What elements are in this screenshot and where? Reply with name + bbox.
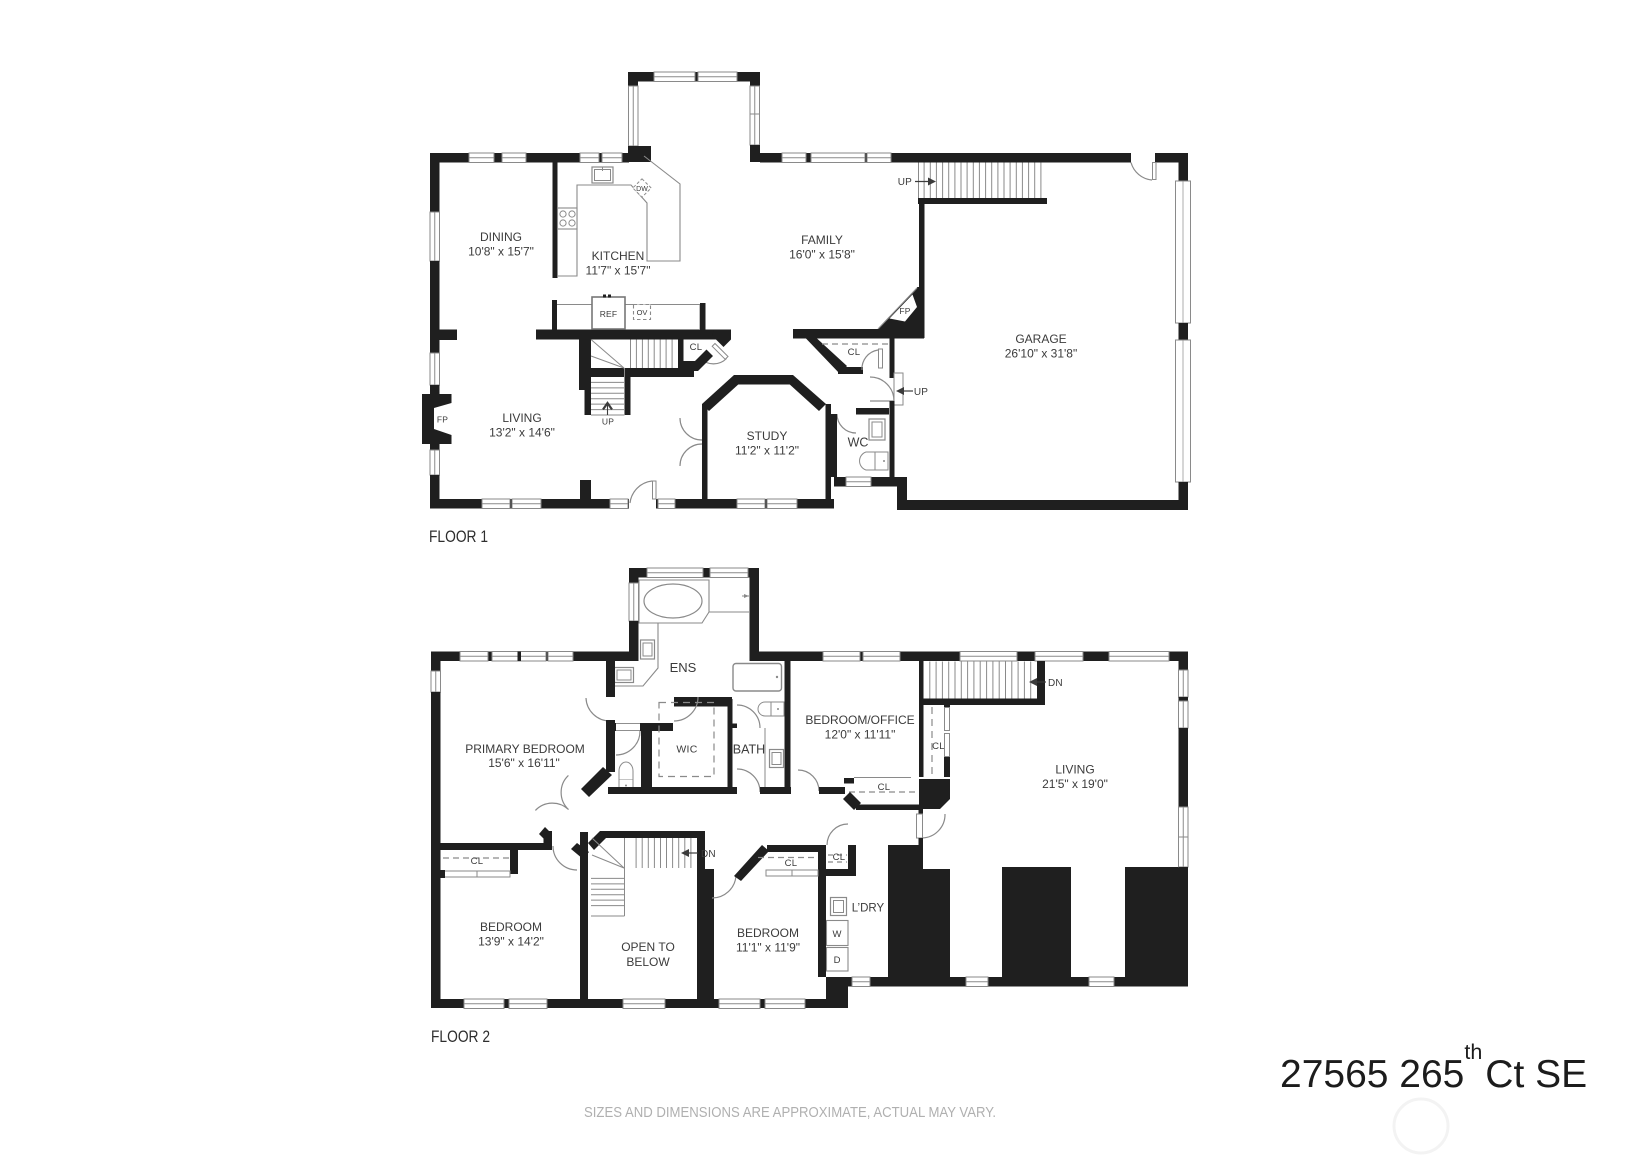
svg-text:DN: DN xyxy=(1048,678,1063,689)
svg-text:CL: CL xyxy=(471,856,484,867)
svg-text:KITCHEN: KITCHEN xyxy=(592,249,645,263)
svg-text:UP: UP xyxy=(602,417,614,427)
svg-text:SIZES AND DIMENSIONS ARE APPRO: SIZES AND DIMENSIONS ARE APPROXIMATE, AC… xyxy=(584,1105,996,1121)
svg-text:OV: OV xyxy=(637,308,648,317)
svg-text:10'8" x 15'7": 10'8" x 15'7" xyxy=(468,245,534,259)
svg-text:CL: CL xyxy=(848,347,861,358)
svg-text:BEDROOM/OFFICE: BEDROOM/OFFICE xyxy=(805,713,914,727)
svg-text:11'1" x 11'9": 11'1" x 11'9" xyxy=(736,941,800,955)
svg-text:D: D xyxy=(834,955,841,966)
svg-text:13'2" x 14'6": 13'2" x 14'6" xyxy=(489,426,555,440)
svg-text:W: W xyxy=(833,929,842,940)
svg-text:26'10" x 31'8": 26'10" x 31'8" xyxy=(1005,347,1078,361)
svg-text:OPEN TO: OPEN TO xyxy=(621,940,675,954)
svg-text:11'2" x 11'2": 11'2" x 11'2" xyxy=(735,444,799,458)
svg-text:DINING: DINING xyxy=(480,230,522,244)
svg-text:13'9" x 14'2": 13'9" x 14'2" xyxy=(478,935,544,949)
svg-text:LIVING: LIVING xyxy=(1055,763,1094,777)
svg-text:CL: CL xyxy=(932,741,945,752)
svg-text:WIC: WIC xyxy=(676,744,697,756)
svg-text:FAMILY: FAMILY xyxy=(801,233,843,247)
svg-text:LIVING: LIVING xyxy=(502,411,541,425)
svg-text:BEDROOM: BEDROOM xyxy=(480,920,542,934)
svg-text:L’DRY: L’DRY xyxy=(852,903,885,915)
svg-text:FLOOR 2: FLOOR 2 xyxy=(431,1028,490,1046)
svg-text:11'7" x 15'7": 11'7" x 15'7" xyxy=(586,264,651,278)
svg-text:16'0" x 15'8": 16'0" x 15'8" xyxy=(789,248,855,262)
svg-text:UP: UP xyxy=(914,387,928,398)
svg-text:BELOW: BELOW xyxy=(626,955,670,969)
svg-text:REF: REF xyxy=(600,309,618,319)
svg-text:CL: CL xyxy=(833,852,846,863)
svg-text:GARAGE: GARAGE xyxy=(1015,332,1066,346)
svg-text:PRIMARY BEDROOM: PRIMARY BEDROOM xyxy=(465,742,585,756)
svg-text:WC: WC xyxy=(848,436,869,450)
svg-text:CL: CL xyxy=(785,858,798,869)
svg-text:STUDY: STUDY xyxy=(747,429,788,443)
svg-text:12'0" x 11'11": 12'0" x 11'11" xyxy=(825,728,896,742)
svg-text:FP: FP xyxy=(899,306,910,316)
svg-text:BEDROOM: BEDROOM xyxy=(737,926,799,940)
svg-text:21'5" x 19'0": 21'5" x 19'0" xyxy=(1042,777,1108,791)
svg-text:DW: DW xyxy=(636,186,648,193)
svg-text:FLOOR 1: FLOOR 1 xyxy=(429,528,488,546)
svg-text:FP: FP xyxy=(437,415,448,425)
svg-text:CL: CL xyxy=(690,342,703,353)
svg-text:CL: CL xyxy=(878,782,891,793)
svg-text:BATH: BATH xyxy=(733,743,765,757)
svg-text:ENS: ENS xyxy=(670,660,697,675)
svg-text:UP: UP xyxy=(898,177,912,188)
svg-text:DN: DN xyxy=(701,849,716,860)
svg-text:15'6" x 16'11": 15'6" x 16'11" xyxy=(488,756,560,770)
